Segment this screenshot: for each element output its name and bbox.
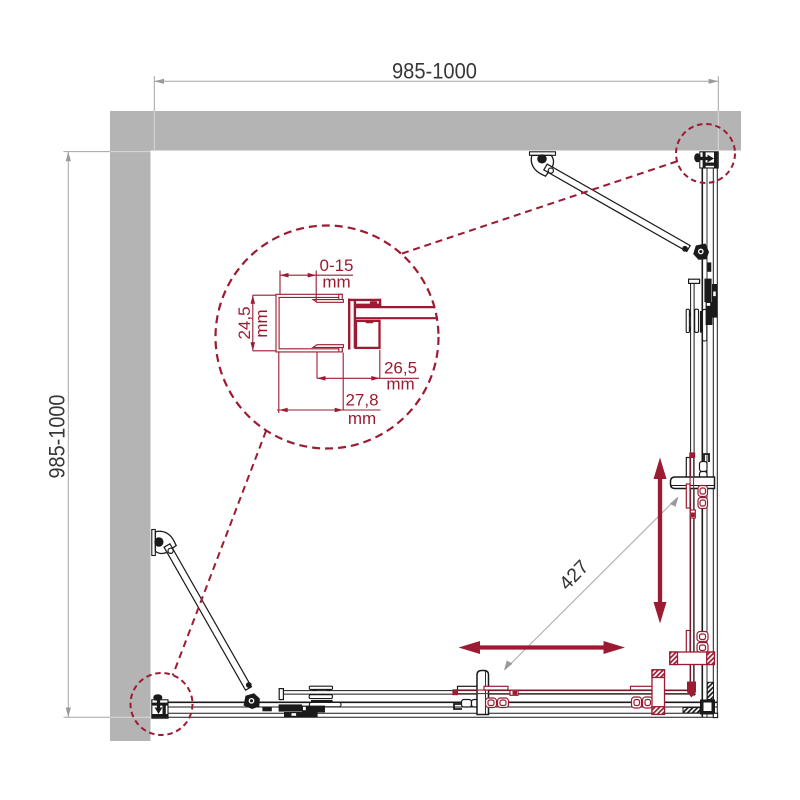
svg-text:mm: mm — [252, 309, 271, 337]
svg-text:mm: mm — [348, 409, 376, 428]
svg-text:985-1000: 985-1000 — [392, 59, 477, 84]
svg-text:mm: mm — [322, 272, 350, 291]
svg-text:27,8: 27,8 — [345, 391, 378, 410]
svg-text:985-1000: 985-1000 — [44, 395, 69, 479]
svg-text:mm: mm — [386, 375, 414, 394]
